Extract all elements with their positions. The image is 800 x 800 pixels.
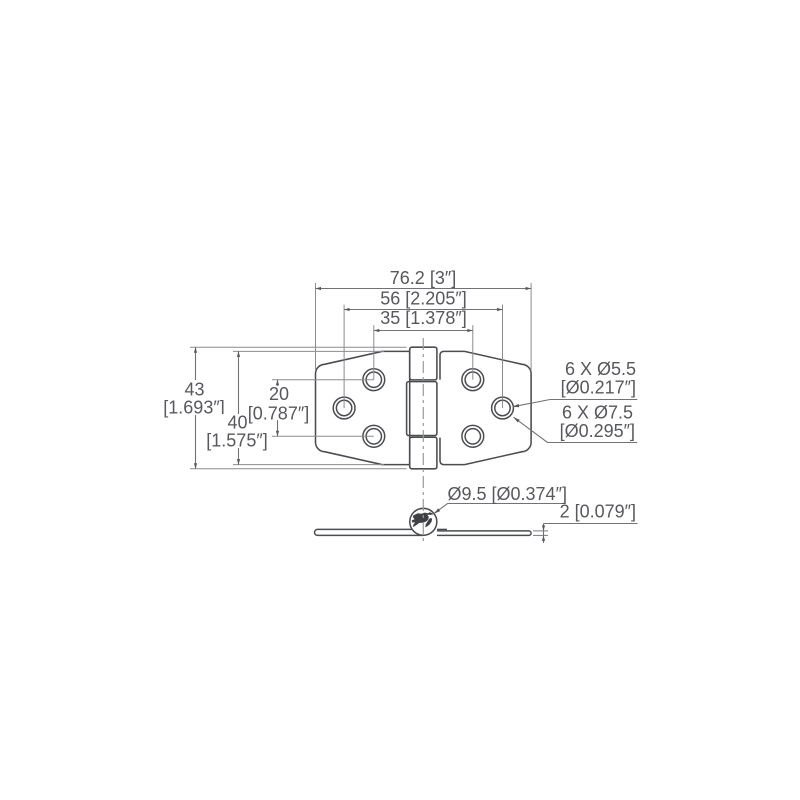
svg-text:76.2 [3″]: 76.2 [3″] bbox=[390, 268, 456, 288]
svg-text:40: 40 bbox=[227, 413, 247, 433]
svg-text:56 [2.205″]: 56 [2.205″] bbox=[380, 289, 466, 309]
svg-text:2 [0.079″]: 2 [0.079″] bbox=[560, 502, 636, 522]
svg-text:Ø9.5 [Ø0.374″]: Ø9.5 [Ø0.374″] bbox=[448, 484, 567, 504]
svg-text:6 X Ø7.5: 6 X Ø7.5 bbox=[562, 403, 633, 423]
svg-text:20: 20 bbox=[269, 384, 289, 404]
svg-text:[Ø0.295″]: [Ø0.295″] bbox=[560, 421, 635, 441]
svg-text:[0.787″]: [0.787″] bbox=[248, 403, 309, 423]
svg-text:[Ø0.217″]: [Ø0.217″] bbox=[561, 378, 636, 398]
svg-text:6 X Ø5.5: 6 X Ø5.5 bbox=[565, 359, 636, 379]
svg-text:[1.575″]: [1.575″] bbox=[206, 431, 267, 451]
svg-text:35 [1.378″]: 35 [1.378″] bbox=[380, 308, 466, 328]
svg-text:43: 43 bbox=[184, 380, 204, 400]
